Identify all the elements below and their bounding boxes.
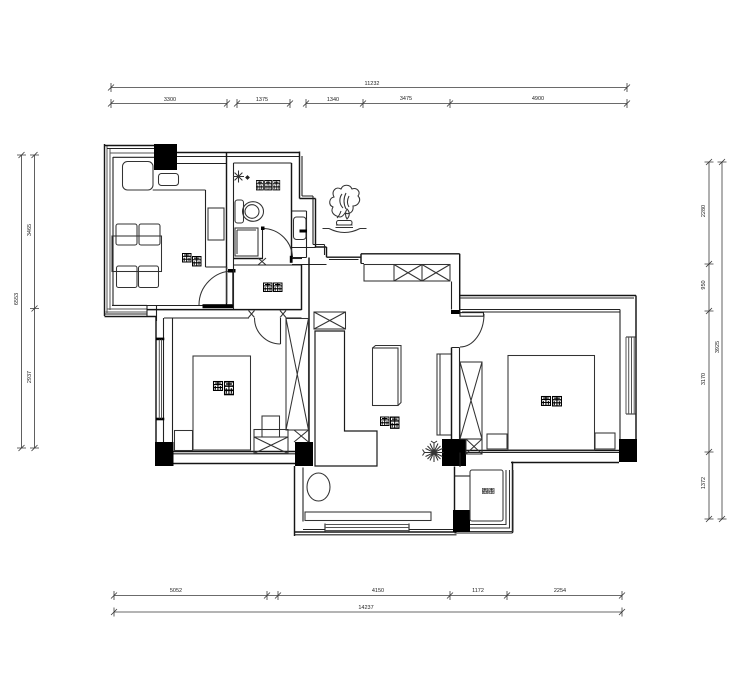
svg-text:6553: 6553 (14, 293, 20, 305)
svg-text:4900: 4900 (532, 96, 544, 102)
svg-text:2254: 2254 (554, 588, 566, 594)
svg-text:3925: 3925 (715, 341, 721, 353)
svg-text:1375: 1375 (256, 97, 268, 103)
svg-text:950: 950 (701, 280, 707, 289)
svg-text:1172: 1172 (472, 588, 484, 594)
svg-text:2280: 2280 (701, 205, 707, 217)
svg-text:3465: 3465 (27, 224, 33, 236)
svg-text:2937: 2937 (27, 371, 33, 383)
svg-text:5052: 5052 (170, 588, 182, 594)
svg-text:11232: 11232 (365, 81, 380, 87)
svg-text:3475: 3475 (400, 96, 412, 102)
svg-text:14237: 14237 (358, 605, 373, 611)
svg-text:4150: 4150 (372, 588, 384, 594)
svg-text:1340: 1340 (327, 97, 339, 103)
svg-text:3170: 3170 (701, 373, 707, 385)
svg-text:1372: 1372 (701, 477, 707, 489)
svg-text:3300: 3300 (164, 97, 176, 103)
